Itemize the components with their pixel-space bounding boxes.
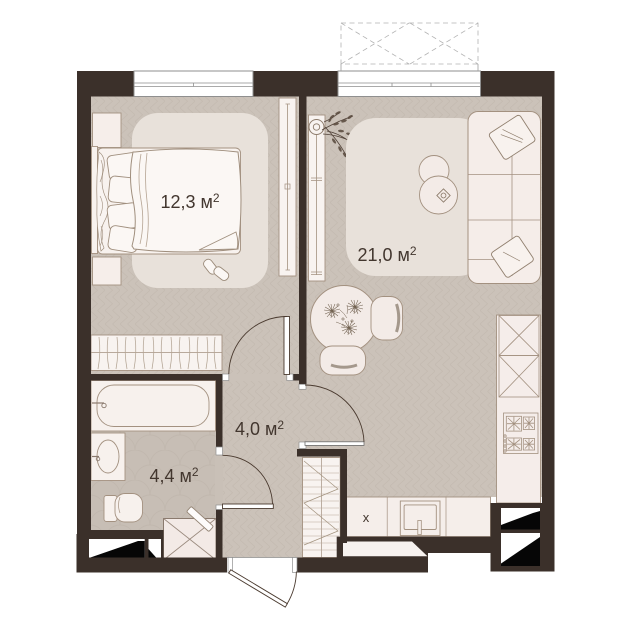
svg-text:12,3 м2: 12,3 м2 [160, 191, 219, 212]
svg-text:4,4 м2: 4,4 м2 [149, 465, 198, 486]
svg-text:21,0 м2: 21,0 м2 [357, 244, 416, 265]
svg-text:x: x [363, 510, 370, 525]
svg-text:4,0 м2: 4,0 м2 [235, 418, 284, 439]
